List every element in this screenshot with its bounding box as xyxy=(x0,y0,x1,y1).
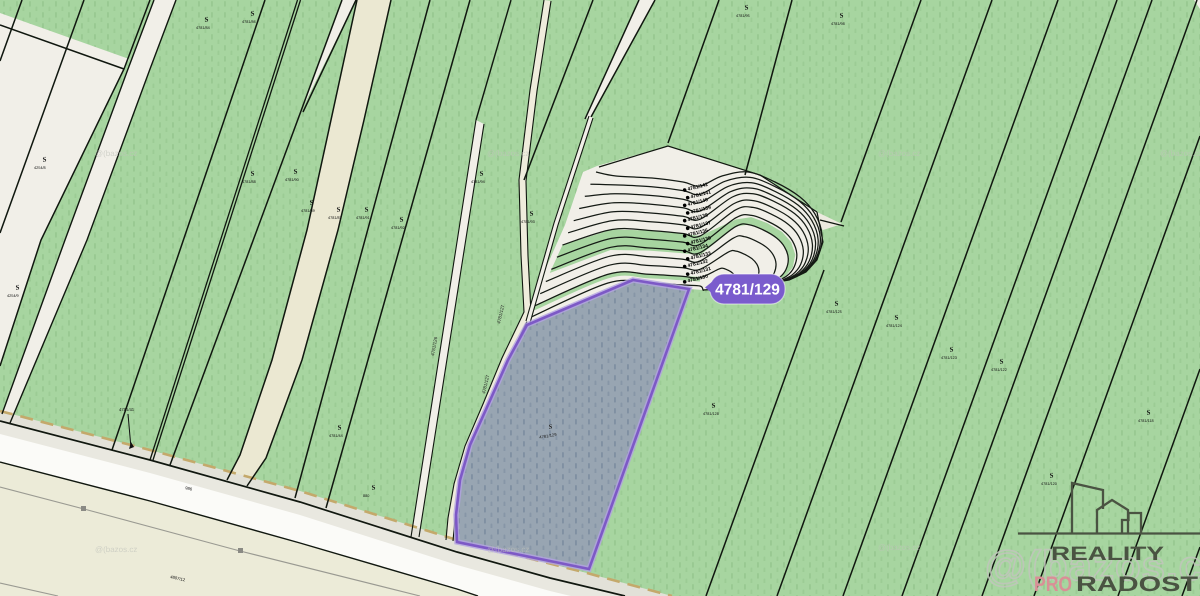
svg-text:@(bazos.cz: @(bazos.cz xyxy=(95,149,137,158)
svg-text:4781/124: 4781/124 xyxy=(886,324,902,328)
svg-text:4781/41: 4781/41 xyxy=(119,407,135,412)
svg-text:@(bazos.cz: @(bazos.cz xyxy=(878,149,920,158)
svg-text:4781/89: 4781/89 xyxy=(301,209,315,213)
svg-text:4781/94: 4781/94 xyxy=(471,180,485,184)
svg-text:4781/87: 4781/87 xyxy=(328,216,342,220)
svg-text:@(bazos.cz: @(bazos.cz xyxy=(95,545,137,554)
svg-text:4781/95: 4781/95 xyxy=(736,14,750,18)
svg-text:4781/91: 4781/91 xyxy=(356,216,370,220)
svg-text:4254/9: 4254/9 xyxy=(7,294,19,298)
svg-text:880: 880 xyxy=(363,494,369,498)
svg-text:@(bazos.cz: @(bazos.cz xyxy=(1160,149,1200,158)
svg-text:4781/129: 4781/129 xyxy=(715,282,780,299)
svg-text:REALITY: REALITY xyxy=(1051,543,1164,565)
svg-text:4781/123: 4781/123 xyxy=(941,356,957,360)
svg-text:4781/98: 4781/98 xyxy=(831,22,845,26)
svg-text:@(bazos.cz: @(bazos.cz xyxy=(878,543,920,552)
svg-text:4254/8: 4254/8 xyxy=(34,166,46,170)
svg-text:4781/88: 4781/88 xyxy=(242,180,256,184)
svg-text:4781/86: 4781/86 xyxy=(242,20,256,24)
svg-text:@(bazos.cz: @(bazos.cz xyxy=(487,545,529,554)
svg-text:RADOST: RADOST xyxy=(1076,573,1198,596)
svg-text:4781/93: 4781/93 xyxy=(521,220,535,224)
svg-text:4781/92: 4781/92 xyxy=(391,226,405,230)
svg-text:4781/128: 4781/128 xyxy=(703,412,719,416)
svg-text:4781/120: 4781/120 xyxy=(1041,482,1057,486)
svg-text:@(bazos.cz: @(bazos.cz xyxy=(487,149,529,158)
svg-text:4781/122: 4781/122 xyxy=(991,368,1007,372)
svg-text:4781/44: 4781/44 xyxy=(329,434,343,438)
svg-text:4781/125: 4781/125 xyxy=(826,310,842,314)
svg-text:4781/118: 4781/118 xyxy=(1138,419,1154,423)
svg-text:4781/84: 4781/84 xyxy=(196,26,210,30)
svg-text:PRO: PRO xyxy=(1034,573,1072,596)
svg-text:4781/90: 4781/90 xyxy=(285,178,299,182)
